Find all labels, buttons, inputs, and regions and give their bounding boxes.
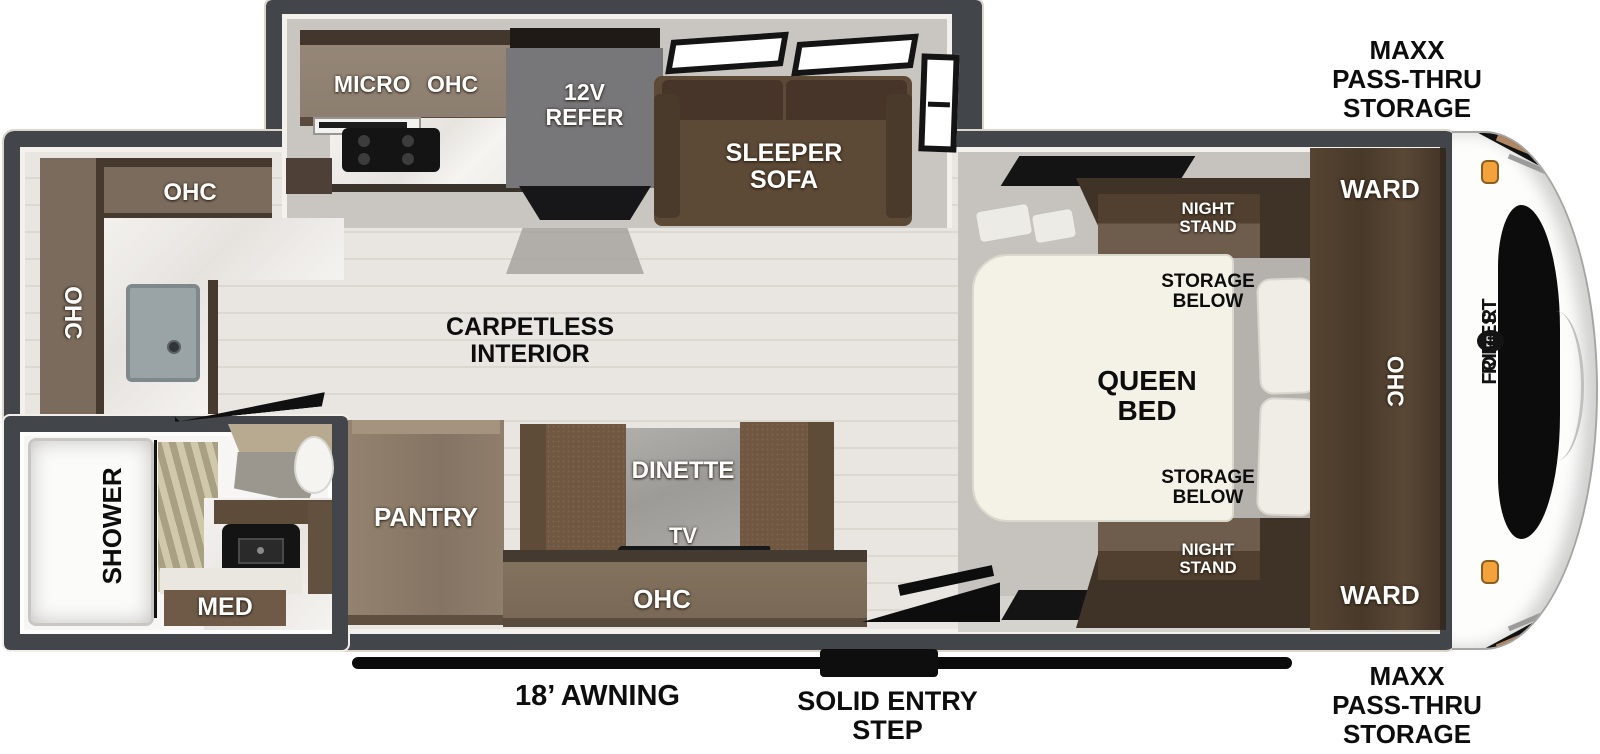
queen-bed-label: QUEEN BED — [1077, 366, 1217, 426]
micro-ohc-label: MICRO OHC — [300, 72, 512, 97]
sofa-back-cushion — [662, 80, 783, 120]
dinette-bench — [740, 422, 808, 555]
burner-icon — [358, 135, 370, 147]
pantry-label: PANTRY — [350, 504, 502, 532]
stove-cooktop — [342, 128, 440, 172]
front-cap-accent-line — [1556, 311, 1584, 461]
rv-floorplan: MICRO OHC 12V REFER SLEEPER SOFA NIGHT S… — [0, 0, 1600, 754]
kitchen-lower-cabinet — [286, 158, 332, 194]
burner-icon — [402, 135, 414, 147]
marker-light-icon — [1481, 560, 1499, 584]
wardrobe-column — [1310, 148, 1446, 630]
ward-top-label: WARD — [1322, 176, 1438, 204]
sleeper-sofa-label: SLEEPER SOFA — [664, 140, 904, 194]
ohc-bottom-label: OHC — [612, 586, 712, 614]
maxx-storage-top-label: MAXX PASS-THRU STORAGE — [1312, 36, 1502, 123]
dinette-label: DINETTE — [620, 458, 746, 484]
refrigerator-top — [510, 28, 660, 50]
refrigerator-shadow — [506, 228, 644, 274]
refer-label: 12V REFER — [506, 80, 663, 129]
carpetless-interior-label: CARPETLESS INTERIOR — [430, 314, 630, 368]
micro-ohc-cabinet-edge — [300, 30, 512, 45]
entry-step-label: SOLID ENTRY STEP — [780, 687, 995, 745]
faucet-icon — [167, 340, 181, 354]
entry-step — [820, 649, 938, 677]
ohc-cabinet-bottom-base — [503, 618, 867, 627]
dinette-bench — [546, 424, 626, 553]
brand-logo: — FOREST FR RIVER — — [1469, 171, 1511, 511]
ward-bottom-label: WARD — [1322, 582, 1438, 610]
vanity-counter-edge-right — [308, 502, 332, 594]
burner-icon — [358, 153, 370, 165]
maxx-storage-bottom-label: MAXX PASS-THRU STORAGE — [1312, 662, 1502, 749]
burner-icon — [402, 153, 414, 165]
rear-ohc-left-label: OHC — [59, 273, 85, 353]
shower — [28, 438, 154, 626]
rear-ohc-top-label: OHC — [140, 180, 240, 206]
dinette-bench-panel — [808, 422, 834, 557]
storage-below-top-label: STORAGE BELOW — [1146, 272, 1270, 313]
dinette-bench-panel — [520, 424, 546, 554]
brand-dash: — — [1479, 331, 1502, 352]
tv-label: TV — [652, 524, 714, 548]
bedroom-ohc-label: OHC — [1383, 341, 1408, 421]
shower-curtain-rail — [154, 440, 157, 618]
awning-label: 18’ AWNING — [495, 681, 700, 712]
pantry-base — [348, 615, 504, 625]
kitchen-sink — [126, 284, 200, 382]
drain-icon — [257, 547, 264, 554]
night-stand-bottom-label: NIGHT STAND — [1152, 541, 1264, 577]
toilet — [294, 436, 334, 494]
rear-counter-edge — [208, 280, 218, 418]
pantry-top — [352, 420, 500, 434]
med-label: MED — [168, 594, 282, 621]
shower-label: SHOWER — [99, 461, 127, 591]
storage-below-bottom-label: STORAGE BELOW — [1146, 468, 1270, 509]
ohc-cabinet-bottom-edge — [503, 550, 867, 562]
window-mullion — [928, 102, 950, 108]
night-stand-top-label: NIGHT STAND — [1152, 200, 1264, 236]
window — [918, 53, 959, 152]
